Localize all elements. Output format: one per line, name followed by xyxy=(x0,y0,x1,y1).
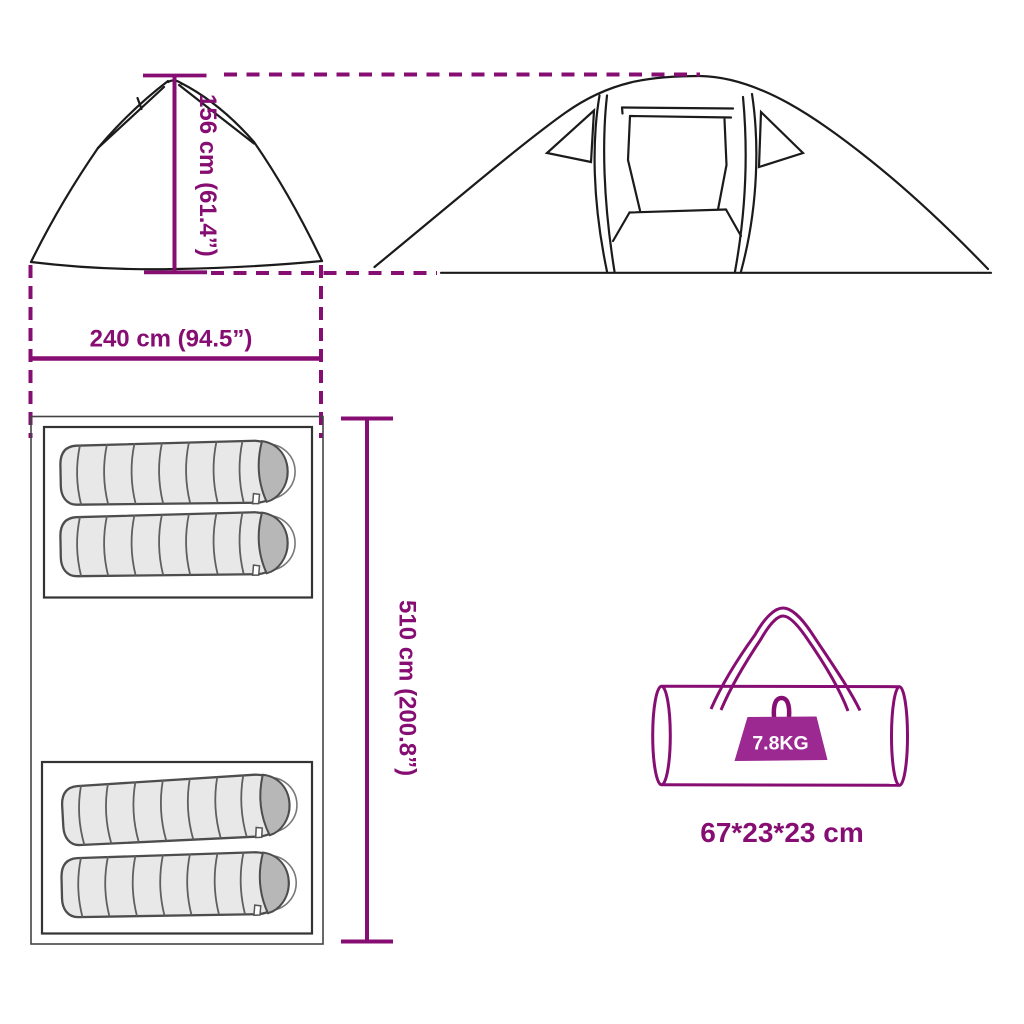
svg-text:156 cm (61.4”): 156 cm (61.4”) xyxy=(194,94,221,257)
svg-text:510 cm (200.8”): 510 cm (200.8”) xyxy=(394,600,421,776)
svg-text:67*23*23 cm: 67*23*23 cm xyxy=(700,817,863,848)
svg-text:240 cm (94.5”): 240 cm (94.5”) xyxy=(90,326,253,353)
svg-text:7.8KG: 7.8KG xyxy=(752,733,808,755)
